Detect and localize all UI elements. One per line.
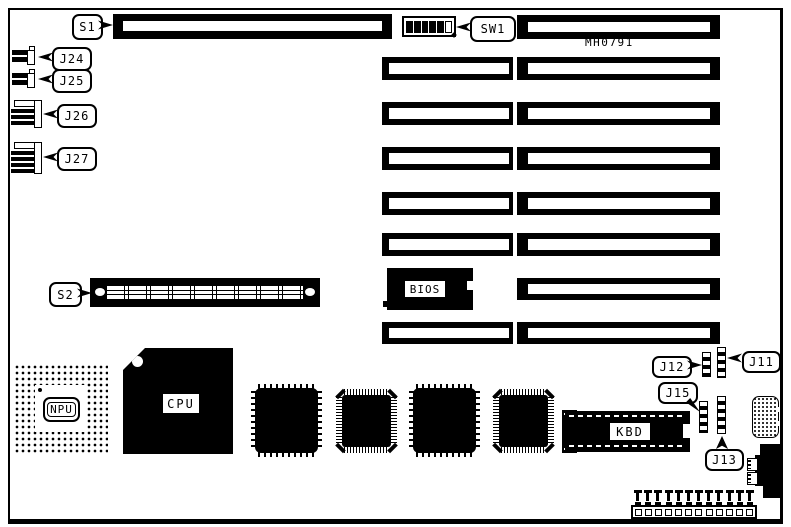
cpu-chip: CPU (123, 348, 233, 454)
power-socket-hole (706, 509, 713, 516)
expansion-slot (382, 102, 513, 125)
j12-callout: J12 (652, 356, 692, 378)
expansion-slot (517, 278, 720, 300)
s2-callout-label: S2 (57, 288, 73, 302)
expansion-slot (517, 57, 720, 80)
expansion-slot (517, 15, 720, 39)
sw1-dip-switch (402, 16, 456, 37)
expansion-slot (517, 102, 720, 125)
power-pin-icon (695, 490, 703, 505)
bios-pin1-mark (383, 301, 388, 307)
j11-callout: J11 (742, 351, 781, 373)
j13-callout-label: J13 (712, 453, 737, 467)
j15-jumper (699, 401, 708, 433)
j12-jumper (702, 352, 711, 377)
dip-switch-cell (437, 21, 444, 33)
power-connector (631, 490, 757, 519)
j26-connector-icon (11, 100, 42, 129)
power-socket-hole (736, 509, 743, 516)
j24-connector-icon (12, 46, 38, 65)
power-pin-icon (726, 490, 734, 505)
j27-connector-icon (11, 142, 42, 175)
power-pin-icon (736, 490, 744, 505)
expansion-slot (382, 57, 513, 80)
cpu-label: CPU (163, 394, 199, 413)
power-socket-hole (685, 509, 692, 516)
power-pin-icon (665, 490, 673, 505)
din-pin-connector-2 (747, 472, 758, 485)
power-socket-hole (655, 509, 662, 516)
qfp-chip-3 (409, 384, 480, 457)
j26-callout: J26 (57, 104, 97, 128)
power-pin-icon (675, 490, 683, 505)
power-pin-icon (644, 490, 652, 505)
power-socket-hole (635, 509, 642, 516)
j12-callout-label: J12 (660, 360, 685, 374)
din-pin-connector-1 (747, 458, 758, 471)
j27-callout-label: J27 (65, 152, 90, 166)
power-socket-hole (716, 509, 723, 516)
npu-label: NPU (47, 402, 76, 417)
expansion-slot (517, 322, 720, 344)
dip-switch-cell (445, 21, 452, 33)
kbd-chip: KBD (565, 411, 690, 452)
power-pin-icon (705, 490, 713, 505)
j24-callout-label: J24 (60, 52, 85, 66)
s2-hole-right (305, 288, 315, 296)
crystal-pad (752, 396, 779, 438)
expansion-slot (382, 147, 513, 170)
j13-callout: J13 (705, 449, 744, 471)
s1-callout-label: S1 (79, 20, 95, 34)
j11-callout-label: J11 (749, 355, 774, 369)
power-pin-icon (685, 490, 693, 505)
s1-slot (113, 14, 392, 39)
power-socket-hole (746, 509, 753, 516)
s2-callout: S2 (49, 282, 82, 307)
j24-callout: J24 (52, 47, 92, 71)
bios-chip: BIOS (387, 268, 473, 310)
dip-switch-cell (414, 21, 421, 33)
power-pin-icon (654, 490, 662, 505)
expansion-slot (382, 233, 513, 256)
bios-chip-label: BIOS (405, 281, 445, 297)
dip-switch-cell (406, 21, 413, 33)
power-connector-pins (634, 490, 754, 505)
s1-callout: S1 (72, 14, 103, 40)
power-socket-hole (695, 509, 702, 516)
expansion-slot (517, 233, 720, 256)
npu-pin1-dot (38, 388, 42, 392)
s2-socket (90, 278, 320, 307)
power-socket-hole (665, 509, 672, 516)
j25-callout-label: J25 (60, 74, 85, 88)
power-connector-strip (631, 505, 757, 519)
qfp-chip-4 (493, 389, 554, 453)
dip-switch-cell (429, 21, 436, 33)
expansion-slot (517, 192, 720, 215)
npu-label-frame: NPU (43, 397, 80, 422)
j25-callout: J25 (52, 69, 92, 93)
qfp-chip-1 (251, 384, 322, 457)
dip-switch-cell (422, 21, 429, 33)
power-socket-hole (726, 509, 733, 516)
power-pin-icon (715, 490, 723, 505)
expansion-slot (382, 322, 513, 344)
j13-jumper (717, 396, 726, 434)
sw1-callout-label: SW1 (481, 22, 506, 36)
power-socket-hole (675, 509, 682, 516)
j25-connector-icon (12, 69, 38, 88)
npu-socket: NPU (14, 364, 108, 454)
power-pin-icon (746, 490, 754, 505)
j27-callout: J27 (57, 147, 97, 171)
qfp-chip-2 (336, 389, 397, 453)
power-socket-hole (645, 509, 652, 516)
s2-contact-grid (106, 285, 304, 300)
power-pin-icon (634, 490, 642, 505)
j15-callout-label: J15 (666, 386, 691, 400)
kbd-label: KBD (610, 423, 650, 440)
sw1-callout: SW1 (470, 16, 516, 42)
keyboard-din-connector (755, 455, 783, 486)
keyboard-din-connector (763, 485, 783, 498)
expansion-slot (382, 192, 513, 215)
s2-hole-left (95, 288, 105, 296)
j11-jumper (717, 347, 726, 378)
j26-callout-label: J26 (65, 109, 90, 123)
expansion-slot (517, 147, 720, 170)
